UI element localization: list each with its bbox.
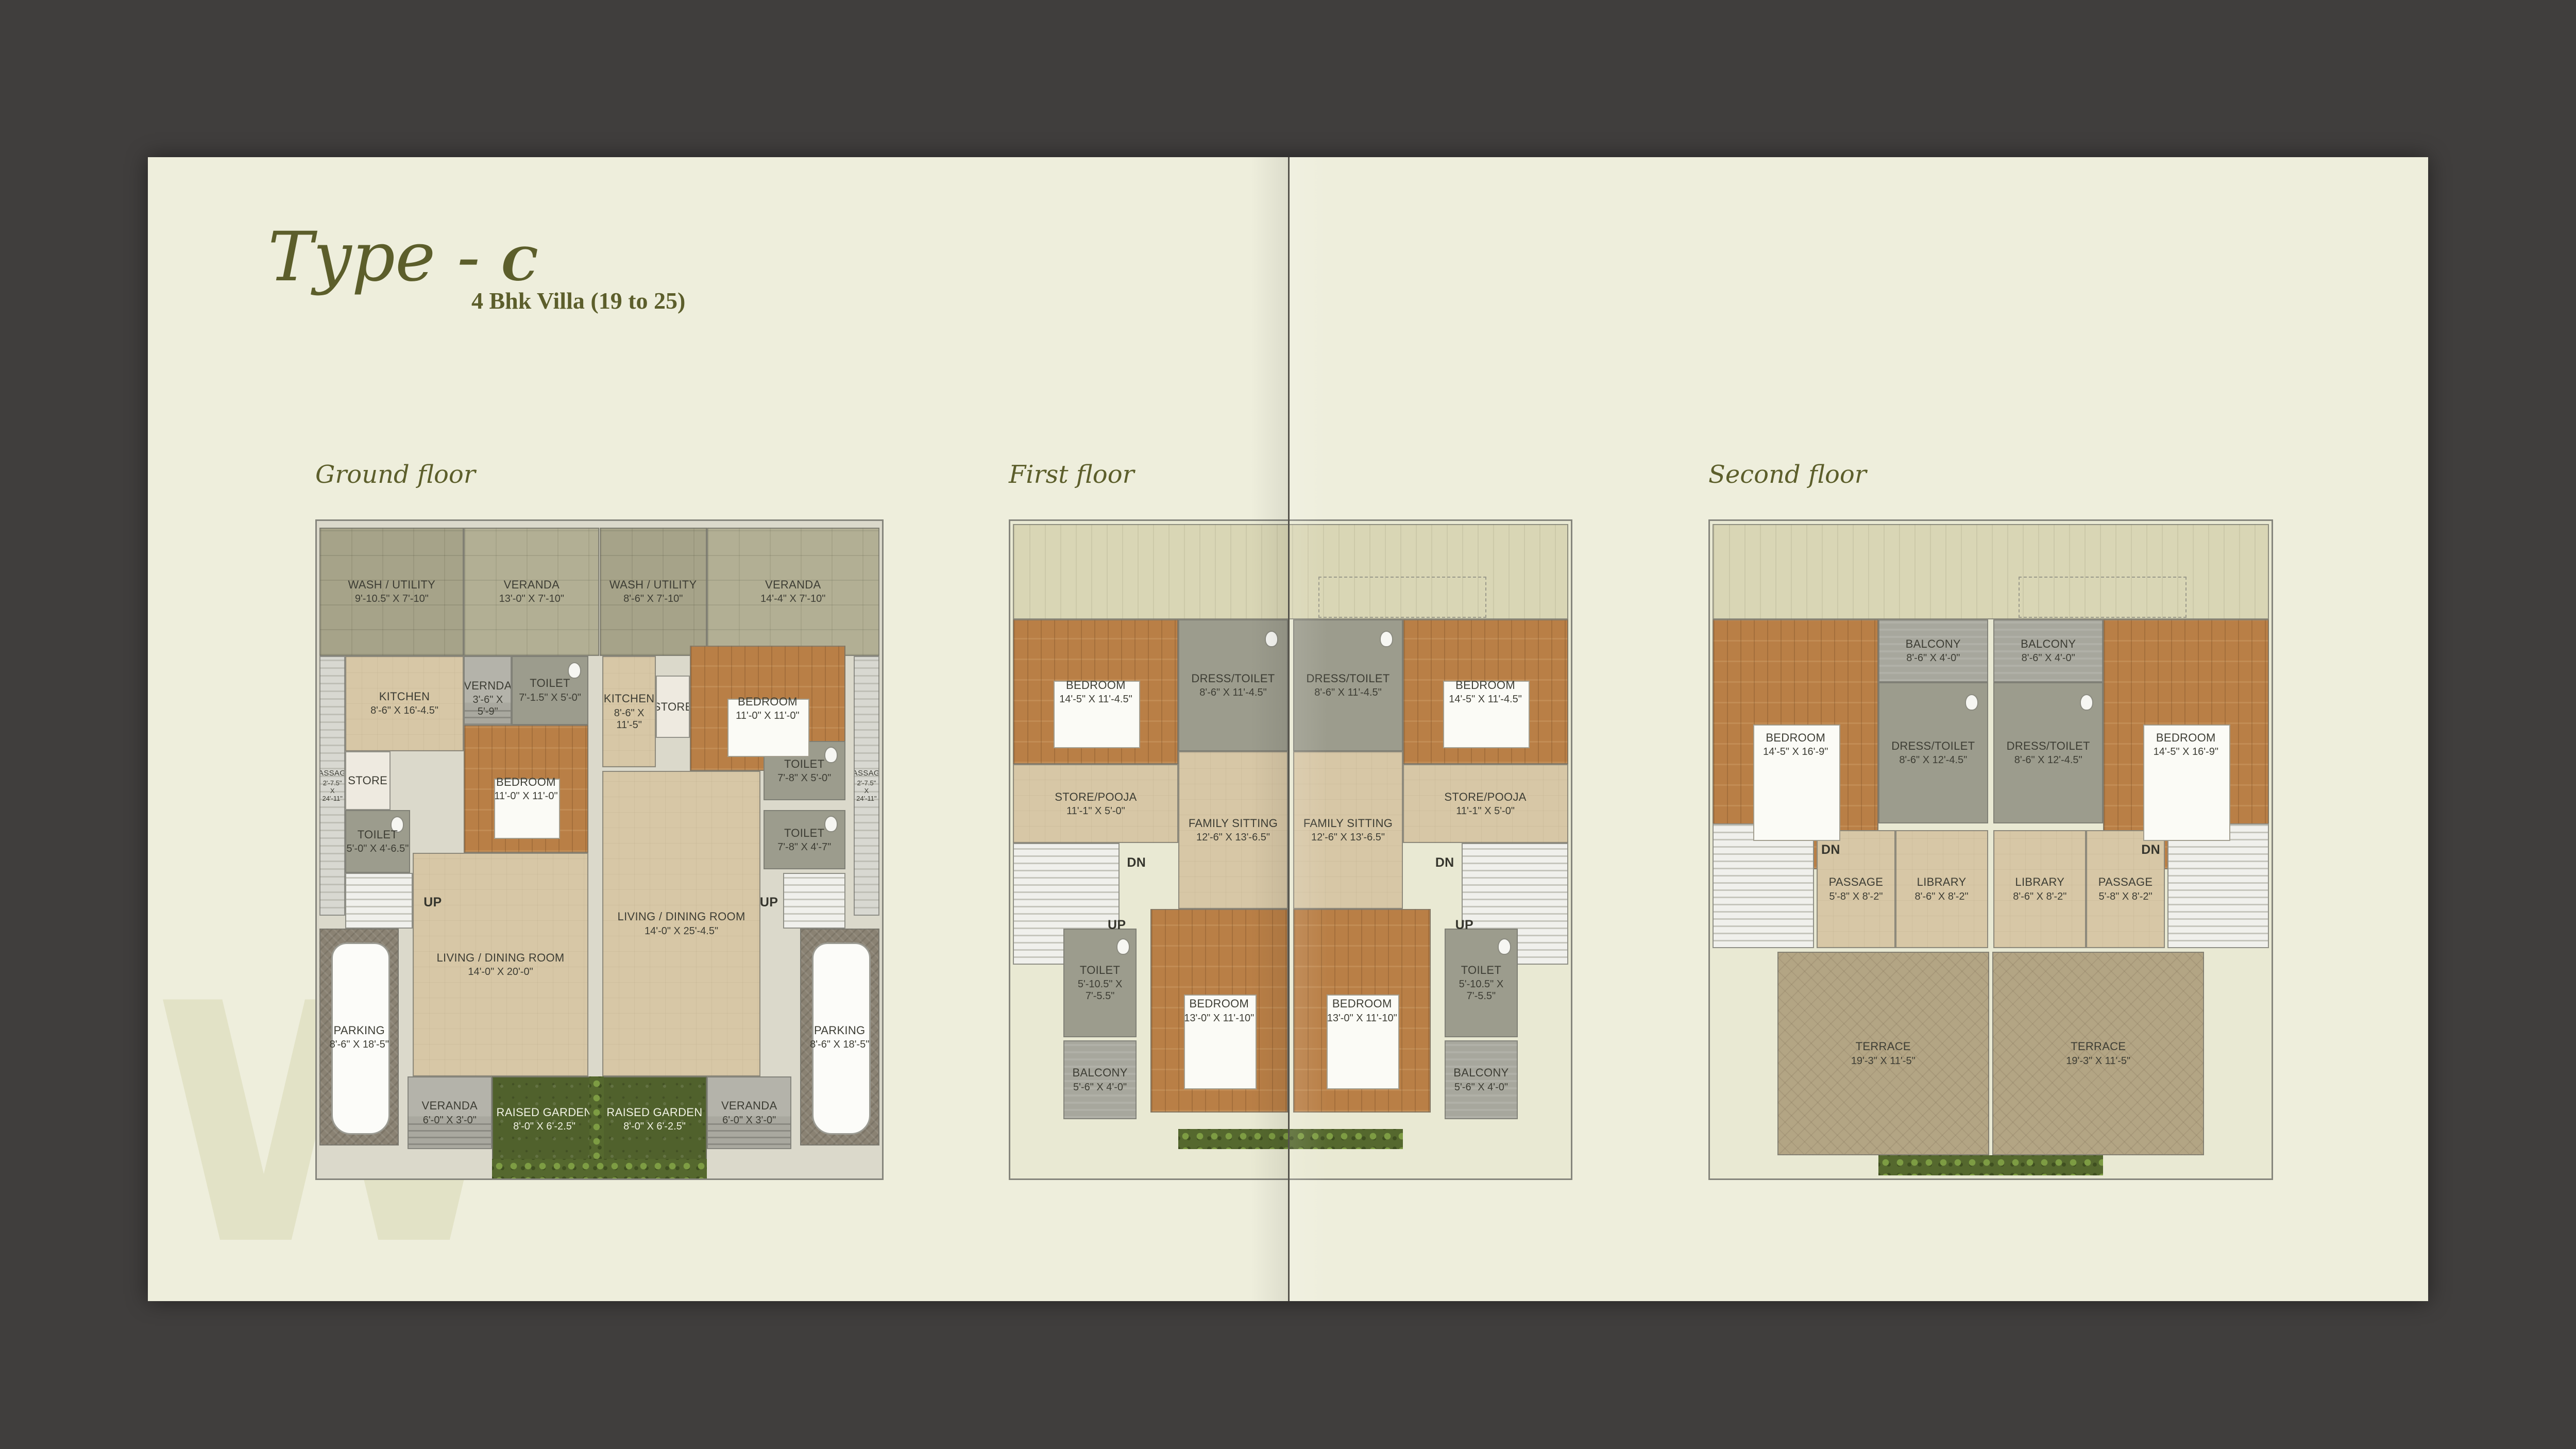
room-plants xyxy=(1878,1155,2103,1175)
room-balcony: BALCONY8'-6" X 4'-0" xyxy=(1993,619,2103,682)
room-name: UP xyxy=(1108,918,1126,933)
room-name: RAISED GARDEN xyxy=(606,1106,702,1119)
room-name: VERNDA xyxy=(464,679,512,692)
room-name: LIVING / DINING ROOM xyxy=(437,951,565,964)
room-store-pooja: STORE/POOJA11'-1" X 5'-0" xyxy=(1403,764,1568,843)
room-dims: 8'-6" X 12'-4.5" xyxy=(2014,754,2082,766)
room-name: PASSAGE xyxy=(1829,875,1884,888)
room-dims: 8'-0" X 6'-2.5" xyxy=(623,1121,686,1133)
room-veranda: VERANDA6'-0" X 3'-0" xyxy=(707,1076,792,1149)
room-name: RAISED GARDEN xyxy=(497,1106,592,1119)
ground-floor-plan: PASSAGE2'-7.5" X 24'-11"WASH / UTILITY9'… xyxy=(315,519,884,1180)
room-dims: 14'-5" X 11'-4.5" xyxy=(1059,694,1132,705)
room-name: VERANDA xyxy=(765,578,821,591)
room-dims: 5'-6" X 4'-0" xyxy=(1454,1082,1508,1093)
room-dims: 8'-6" X 12'-4.5" xyxy=(1899,754,1967,766)
room-wash-utility: WASH / UTILITY9'-10.5" X 7'-10" xyxy=(319,528,464,656)
title-script: Type - xyxy=(268,217,502,297)
room-name: TOILET xyxy=(1461,964,1501,976)
room-dims: 9'-10.5" X 7'-10" xyxy=(355,593,429,605)
room-name: STORE xyxy=(656,700,690,713)
room-dims: 11'-1" X 5'-0" xyxy=(1066,805,1125,817)
room-dims: 11'-0" X 11'-0" xyxy=(736,710,799,722)
room-dims: 13'-0" X 11'-10" xyxy=(1327,1013,1397,1024)
room-parking: PARKING8'-6" X 18'-5" xyxy=(319,929,399,1145)
room-toilet: TOILET5'-10.5" X 7'-5.5" xyxy=(1445,929,1517,1037)
room-name: PARKING xyxy=(814,1024,866,1037)
room-store: STORE xyxy=(345,751,391,811)
room-bedroom: BEDROOM14'-5" X 11'-4.5" xyxy=(1403,619,1568,764)
room-dims: 5'-8" X 8'-2" xyxy=(2099,891,2153,903)
room-dims: 5'-10.5" X 7'-5.5" xyxy=(1446,979,1516,1002)
room-library: LIBRARY8'-6" X 8'-2" xyxy=(1895,830,1988,949)
room-dims: 11'-0" X 11'-0" xyxy=(494,790,557,802)
room-dims: 8'-6" X 18'-5" xyxy=(810,1039,869,1051)
room-dims: 6'-0" X 3'-0" xyxy=(722,1115,776,1126)
room-dn: DN xyxy=(1123,847,1150,880)
room-toilet: TOILET5'-10.5" X 7'-5.5" xyxy=(1063,929,1136,1037)
room-name: TOILET xyxy=(784,827,824,839)
room-dress-toilet: DRESS/TOILET8'-6" X 12'-4.5" xyxy=(1878,682,1988,823)
room-name: BEDROOM xyxy=(738,695,798,708)
room-name: STORE/POOJA xyxy=(1055,790,1137,803)
room-name: TOILET xyxy=(784,757,824,770)
room-name: BEDROOM xyxy=(1766,731,1825,744)
room-terrace: TERRACE19'-3" X 11'-5" xyxy=(1992,952,2204,1156)
room-dims: 2'-7.5" X 24'-11" xyxy=(321,780,343,803)
room-dims: 5'-0" X 4'-6.5" xyxy=(347,843,409,855)
room-bedroom: BEDROOM11'-0" X 11'-0" xyxy=(464,725,588,853)
room-wash-utility: WASH / UTILITY8'-6" X 7'-10" xyxy=(600,528,707,656)
room-dims: 8'-6" X 4'-0" xyxy=(2022,652,2075,664)
room-name: DRESS/TOILET xyxy=(2007,739,2090,752)
room-store: STORE xyxy=(656,676,690,738)
room-name: DN xyxy=(1127,855,1146,870)
room-name: STORE xyxy=(348,774,387,787)
room-dims: 5'-8" X 8'-2" xyxy=(1829,891,1883,903)
room-parking: PARKING8'-6" X 18'-5" xyxy=(800,929,879,1145)
room-name: PASSAGE xyxy=(2098,875,2153,888)
room-dims: 6'-0" X 3'-0" xyxy=(423,1115,477,1126)
page-fold xyxy=(1288,157,1290,1301)
room-stairs xyxy=(345,873,413,929)
room-bedroom: BEDROOM14'-5" X 11'-4.5" xyxy=(1013,619,1178,764)
room-name: LIBRARY xyxy=(2015,875,2064,888)
room-name: BALCONY xyxy=(1453,1066,1509,1079)
room-name: BEDROOM xyxy=(1332,997,1392,1010)
room-dims: 3'-6" X 5'-9" xyxy=(465,694,511,718)
room-dims: 14'-5" X 11'-4.5" xyxy=(1449,694,1522,705)
room-dims: 7'-8" X 4'-7" xyxy=(777,841,831,853)
room-name: BEDROOM xyxy=(1066,679,1126,692)
room-toilet: TOILET7'-8" X 4'-7" xyxy=(764,810,845,869)
room-name: DN xyxy=(1435,855,1454,870)
room-name: DRESS/TOILET xyxy=(1891,739,1975,752)
room-veranda: VERANDA14'-4" X 7'-10" xyxy=(707,528,879,656)
room-name: VERANDA xyxy=(422,1099,478,1112)
room-name: UP xyxy=(423,895,442,910)
room-dims: 8'-6" X 8'-2" xyxy=(2013,891,2066,903)
room-stairs xyxy=(2167,823,2268,948)
room-name: BALCONY xyxy=(1072,1066,1127,1079)
room-dims: 11'-1" X 5'-0" xyxy=(1456,805,1515,817)
room-open xyxy=(1713,524,2268,619)
room-name: PASSAGE xyxy=(319,769,345,778)
room-name: BEDROOM xyxy=(1189,997,1249,1010)
floor-label-ground: Ground floor xyxy=(315,460,476,489)
room-name: TOILET xyxy=(1080,964,1120,976)
room-dims: 13'-0" X 7'-10" xyxy=(499,593,564,605)
room-passage: PASSAGE2'-7.5" X 24'-11" xyxy=(319,656,345,916)
room-raised-garden: RAISED GARDEN8'-0" X 6'-2.5" xyxy=(492,1076,597,1162)
room-name: UP xyxy=(1455,918,1473,933)
floor-label-second: Second floor xyxy=(1708,460,1867,489)
room-name: VERANDA xyxy=(504,578,560,591)
room-dims: 13'-0" X 11'-10" xyxy=(1184,1013,1254,1024)
room-raised-garden: RAISED GARDEN8'-0" X 6'-2.5" xyxy=(602,1076,707,1162)
room-dims: 8'-6" X 18'-5" xyxy=(330,1039,389,1051)
room-name: BEDROOM xyxy=(496,776,556,788)
room-name: PASSAGE xyxy=(854,769,879,778)
room-name: WASH / UTILITY xyxy=(348,578,436,591)
room-dims: 2'-7.5" X 24'-11" xyxy=(856,780,877,803)
room-balcony: BALCONY5'-6" X 4'-0" xyxy=(1063,1040,1136,1119)
room-library: LIBRARY8'-6" X 8'-2" xyxy=(1993,830,2086,949)
brochure-page: W Type - C 4 Bhk Villa (19 to 25) Ground… xyxy=(148,157,2428,1301)
room-name: BEDROOM xyxy=(1455,679,1515,692)
room-dims: 8'-6" X 11'-5" xyxy=(603,707,655,731)
second-floor-plan: BEDROOM14'-5" X 16'-9"BEDROOM14'-5" X 16… xyxy=(1708,519,2273,1180)
room-dims: 14'-5" X 16'-9" xyxy=(2154,746,2218,758)
room-dims: 8'-6" X 8'-2" xyxy=(1915,891,1969,903)
room-dress-toilet: DRESS/TOILET8'-6" X 12'-4.5" xyxy=(1993,682,2103,823)
room-toilet: TOILET5'-0" X 4'-6.5" xyxy=(345,810,410,872)
room-dims: 14'-0" X 20'-0" xyxy=(468,966,533,978)
room-dims: 14'-0" X 25'-4.5" xyxy=(645,925,718,937)
page-subtitle: 4 Bhk Villa (19 to 25) xyxy=(471,287,685,314)
room-name: LIVING / DINING ROOM xyxy=(618,910,745,923)
room-toilet: TOILET7'-1.5" X 5'-0" xyxy=(512,656,588,725)
title-letter: C xyxy=(502,238,538,291)
room-dn: DN xyxy=(2137,833,2165,866)
room-kitchen: KITCHEN8'-6" X 16'-4.5" xyxy=(345,656,464,751)
room-name: BALCONY xyxy=(2021,637,2076,650)
room-name: WASH / UTILITY xyxy=(609,578,697,591)
room-stairs xyxy=(1713,823,1814,948)
room-dims: 19'-3" X 11'-5" xyxy=(2066,1055,2130,1067)
room-name: BALCONY xyxy=(1906,637,1961,650)
room-dims: 8'-6" X 16'-4.5" xyxy=(370,705,438,717)
room-name: UP xyxy=(760,895,778,910)
room-name: KITCHEN xyxy=(379,690,430,703)
room-name: KITCHEN xyxy=(604,692,655,705)
room-kitchen: KITCHEN8'-6" X 11'-5" xyxy=(602,656,656,768)
room-stairs xyxy=(783,873,845,929)
room-up: UP xyxy=(755,886,783,919)
room-dims: 8'-6" X 4'-0" xyxy=(1906,652,1960,664)
room-dims: 7'-8" X 5'-0" xyxy=(777,772,831,784)
room-name: VERANDA xyxy=(721,1099,777,1112)
room-dims: 14'-4" X 7'-10" xyxy=(760,593,825,605)
room-veranda: VERANDA6'-0" X 3'-0" xyxy=(408,1076,493,1149)
page-title: Type - C xyxy=(268,223,538,291)
room-dims: 8'-0" X 6'-2.5" xyxy=(513,1121,575,1133)
room-terrace: TERRACE19'-3" X 11'-5" xyxy=(1777,952,1989,1156)
room-name: TERRACE xyxy=(1856,1040,1911,1053)
room-dims: 8'-6" X 7'-10" xyxy=(623,593,683,605)
room-dims: 7'-1.5" X 5'-0" xyxy=(519,692,581,704)
room-dn: DN xyxy=(1817,833,1845,866)
room-name: TOILET xyxy=(358,828,398,841)
room-balcony: BALCONY5'-6" X 4'-0" xyxy=(1445,1040,1517,1119)
canvas: W Type - C 4 Bhk Villa (19 to 25) Ground… xyxy=(0,0,2576,1449)
room-living-dining-room: LIVING / DINING ROOM14'-0" X 25'-4.5" xyxy=(602,771,760,1076)
room-dims: 14'-5" X 16'-9" xyxy=(1763,746,1828,758)
room-name: BEDROOM xyxy=(2156,731,2216,744)
room-dims: 19'-3" X 11'-5" xyxy=(1851,1055,1916,1067)
room-dn: DN xyxy=(1431,847,1459,880)
room-name: PARKING xyxy=(334,1024,385,1037)
room-name: TOILET xyxy=(530,677,570,689)
room-name: LIBRARY xyxy=(1917,875,1967,888)
room-plants xyxy=(492,1159,707,1178)
room-dims: 5'-6" X 4'-0" xyxy=(1073,1082,1127,1093)
room-passage: PASSAGE2'-7.5" X 24'-11" xyxy=(854,656,879,916)
room-name: TERRACE xyxy=(2071,1040,2126,1053)
room-up: UP xyxy=(1450,909,1478,942)
room-veranda: VERANDA13'-0" X 7'-10" xyxy=(464,528,599,656)
room-up: UP xyxy=(1103,909,1131,942)
room-name: STORE/POOJA xyxy=(1444,790,1526,803)
room-up: UP xyxy=(416,886,450,919)
room-name: DN xyxy=(1821,843,1840,857)
room-dims: 5'-10.5" X 7'-5.5" xyxy=(1064,979,1135,1002)
room-name: DN xyxy=(2141,843,2160,857)
floor-label-first: First floor xyxy=(1009,460,1134,489)
room-balcony: BALCONY8'-6" X 4'-0" xyxy=(1878,619,1988,682)
room-store-pooja: STORE/POOJA11'-1" X 5'-0" xyxy=(1013,764,1178,843)
